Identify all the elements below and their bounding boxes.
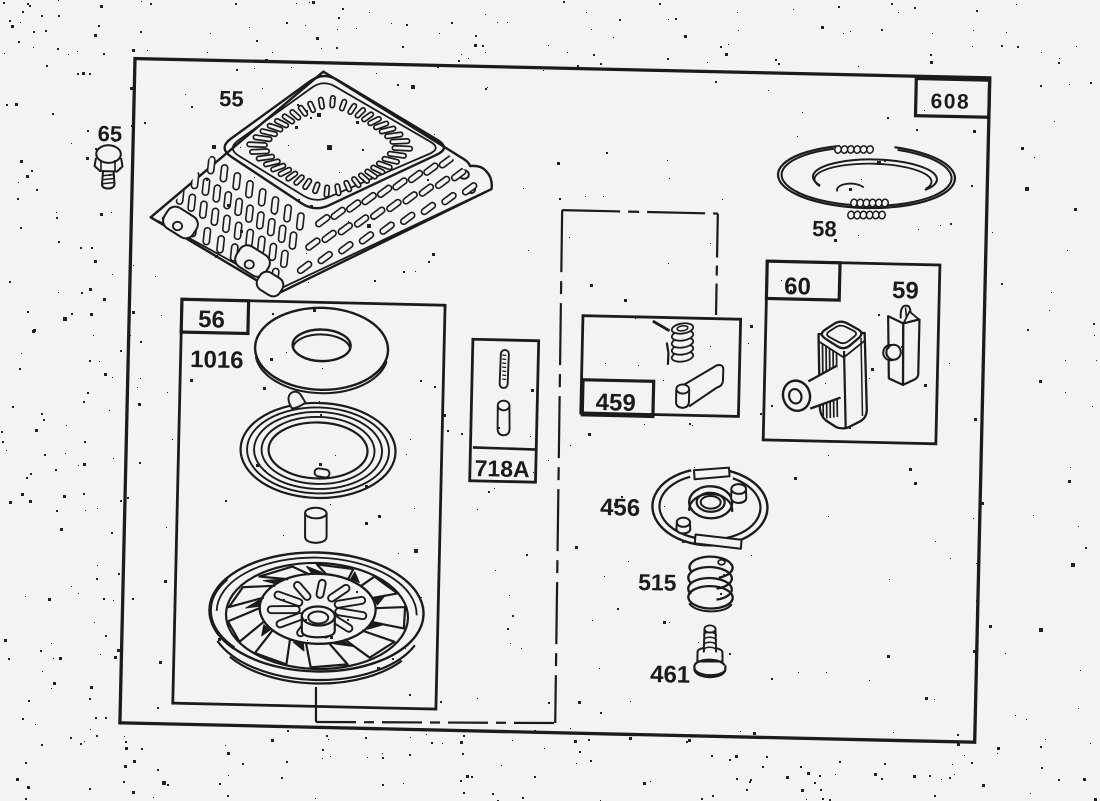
svg-text:56: 56 bbox=[198, 306, 225, 334]
svg-text:456: 456 bbox=[600, 494, 641, 522]
svg-text:718A: 718A bbox=[474, 455, 530, 482]
svg-text:461: 461 bbox=[650, 661, 691, 689]
svg-text:65: 65 bbox=[97, 121, 122, 147]
svg-text:459: 459 bbox=[595, 389, 636, 417]
svg-text:608: 608 bbox=[930, 90, 970, 114]
svg-text:58: 58 bbox=[812, 216, 837, 242]
svg-text:515: 515 bbox=[638, 569, 677, 596]
svg-text:55: 55 bbox=[219, 86, 244, 112]
svg-text:1016: 1016 bbox=[190, 346, 244, 374]
svg-text:59: 59 bbox=[892, 277, 919, 305]
svg-text:60: 60 bbox=[784, 273, 811, 301]
